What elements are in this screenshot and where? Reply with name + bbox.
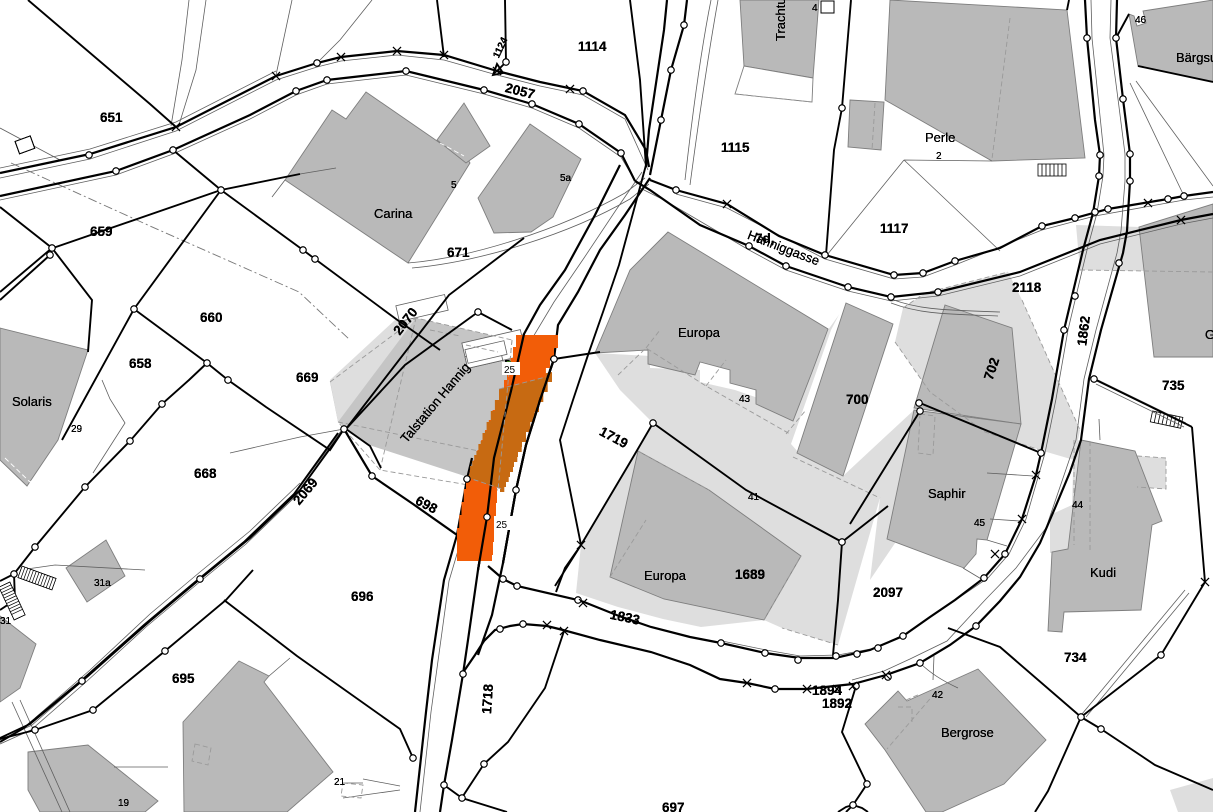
svg-text:Carina: Carina (374, 206, 413, 221)
svg-text:2: 2 (936, 151, 942, 162)
svg-text:31a: 31a (94, 578, 111, 589)
svg-text:5: 5 (451, 180, 457, 191)
svg-text:1114: 1114 (578, 39, 607, 54)
svg-text:1718: 1718 (479, 683, 496, 714)
svg-text:25: 25 (504, 365, 516, 376)
svg-text:Trachtuh: Trachtuh (773, 0, 788, 41)
svg-text:Bergrose: Bergrose (941, 725, 994, 740)
svg-text:41: 41 (748, 492, 760, 503)
svg-text:1892: 1892 (822, 696, 852, 711)
svg-text:46: 46 (1135, 15, 1147, 26)
svg-text:671: 671 (447, 245, 470, 260)
svg-text:Solaris: Solaris (12, 394, 52, 409)
svg-text:651: 651 (100, 110, 123, 125)
svg-text:Europa: Europa (644, 568, 687, 583)
svg-text:45: 45 (974, 518, 986, 529)
svg-text:697: 697 (662, 800, 685, 812)
svg-text:42: 42 (932, 690, 944, 701)
svg-text:700: 700 (846, 392, 869, 407)
svg-text:Perle: Perle (925, 130, 955, 145)
svg-text:668: 668 (194, 466, 217, 481)
svg-text:659: 659 (90, 224, 113, 239)
svg-text:Bärgsunn: Bärgsunn (1176, 50, 1213, 65)
svg-text:658: 658 (129, 356, 152, 371)
svg-text:734: 734 (1064, 650, 1087, 665)
svg-text:735: 735 (1162, 378, 1185, 393)
svg-text:669: 669 (296, 370, 319, 385)
svg-text:31: 31 (0, 616, 12, 627)
svg-text:1115: 1115 (721, 140, 750, 155)
svg-text:43: 43 (739, 394, 751, 405)
svg-text:25: 25 (496, 520, 508, 531)
svg-text:2118: 2118 (1012, 280, 1042, 295)
svg-text:Europa: Europa (678, 325, 721, 340)
svg-text:Saphir: Saphir (928, 486, 966, 501)
svg-text:2097: 2097 (873, 585, 903, 600)
svg-text:19: 19 (118, 798, 130, 809)
svg-text:4: 4 (812, 3, 818, 14)
svg-text:695: 695 (172, 671, 195, 686)
svg-text:1689: 1689 (735, 567, 765, 582)
svg-text:1117: 1117 (880, 221, 909, 236)
svg-text:21: 21 (334, 777, 346, 788)
svg-text:660: 660 (200, 310, 223, 325)
svg-text:Kudi: Kudi (1090, 565, 1116, 580)
svg-text:5a: 5a (560, 173, 572, 184)
svg-text:29: 29 (71, 424, 83, 435)
svg-text:G: G (1205, 327, 1213, 342)
svg-text:7d,: 7d, (755, 231, 775, 246)
svg-text:696: 696 (351, 589, 374, 604)
svg-text:44: 44 (1072, 500, 1084, 511)
